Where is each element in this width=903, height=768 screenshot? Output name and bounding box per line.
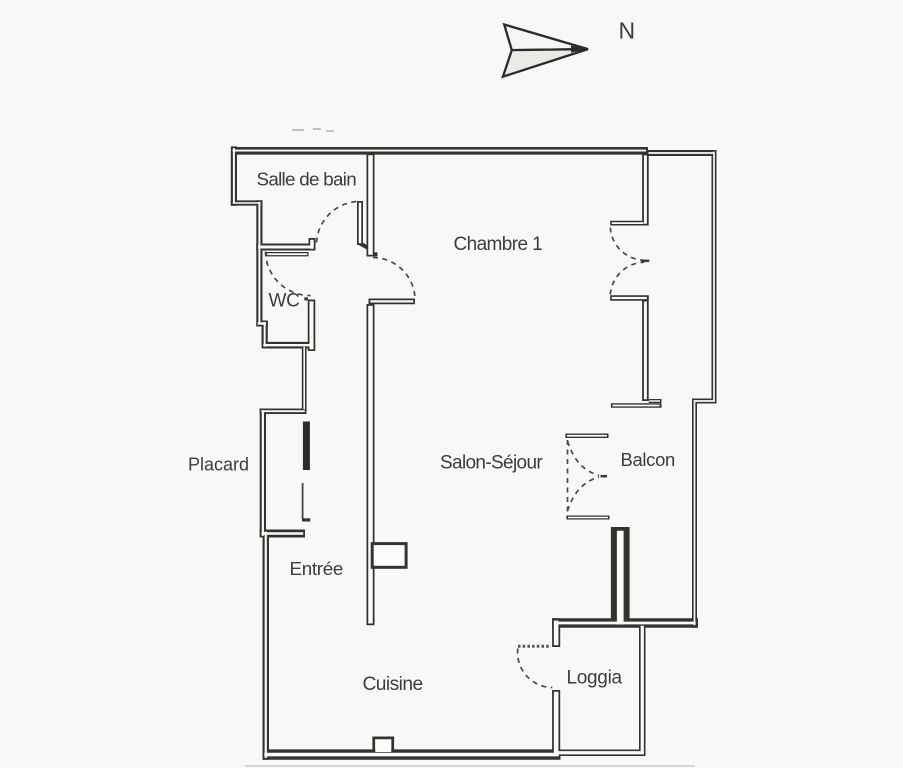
svg-text:WC: WC <box>269 291 300 312</box>
svg-text:N: N <box>619 18 636 44</box>
svg-text:Cuisine: Cuisine <box>363 674 423 695</box>
svg-text:Entrée: Entrée <box>290 558 344 579</box>
svg-text:Balcon: Balcon <box>621 449 676 470</box>
svg-text:Salon-Séjour: Salon-Séjour <box>440 453 543 474</box>
svg-text:Salle de bain: Salle de bain <box>257 169 357 190</box>
svg-text:Placard: Placard <box>188 455 249 475</box>
svg-text:Chambre 1: Chambre 1 <box>454 234 543 255</box>
svg-text:Loggia: Loggia <box>567 668 623 689</box>
